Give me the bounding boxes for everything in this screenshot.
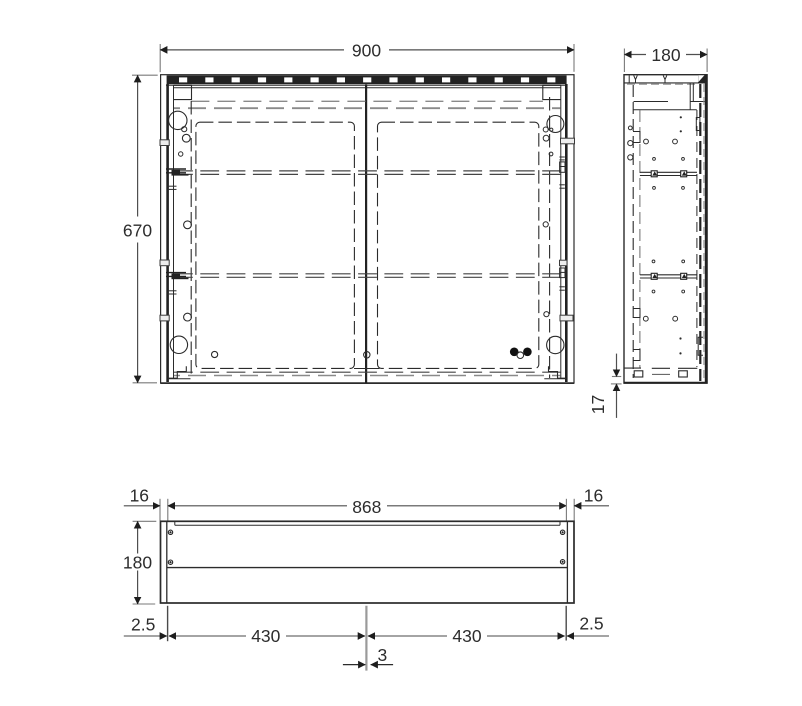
svg-text:3: 3 xyxy=(378,645,388,665)
svg-text:2.5: 2.5 xyxy=(131,615,155,635)
svg-text:2.5: 2.5 xyxy=(579,614,603,634)
svg-text:180: 180 xyxy=(123,553,152,573)
svg-text:430: 430 xyxy=(251,626,280,646)
svg-text:868: 868 xyxy=(352,497,381,517)
svg-text:670: 670 xyxy=(123,220,152,240)
svg-text:16: 16 xyxy=(584,486,603,506)
svg-text:16: 16 xyxy=(130,486,149,506)
svg-text:900: 900 xyxy=(352,40,381,60)
svg-text:17: 17 xyxy=(588,395,608,414)
svg-text:180: 180 xyxy=(651,45,680,65)
svg-text:430: 430 xyxy=(452,626,481,646)
